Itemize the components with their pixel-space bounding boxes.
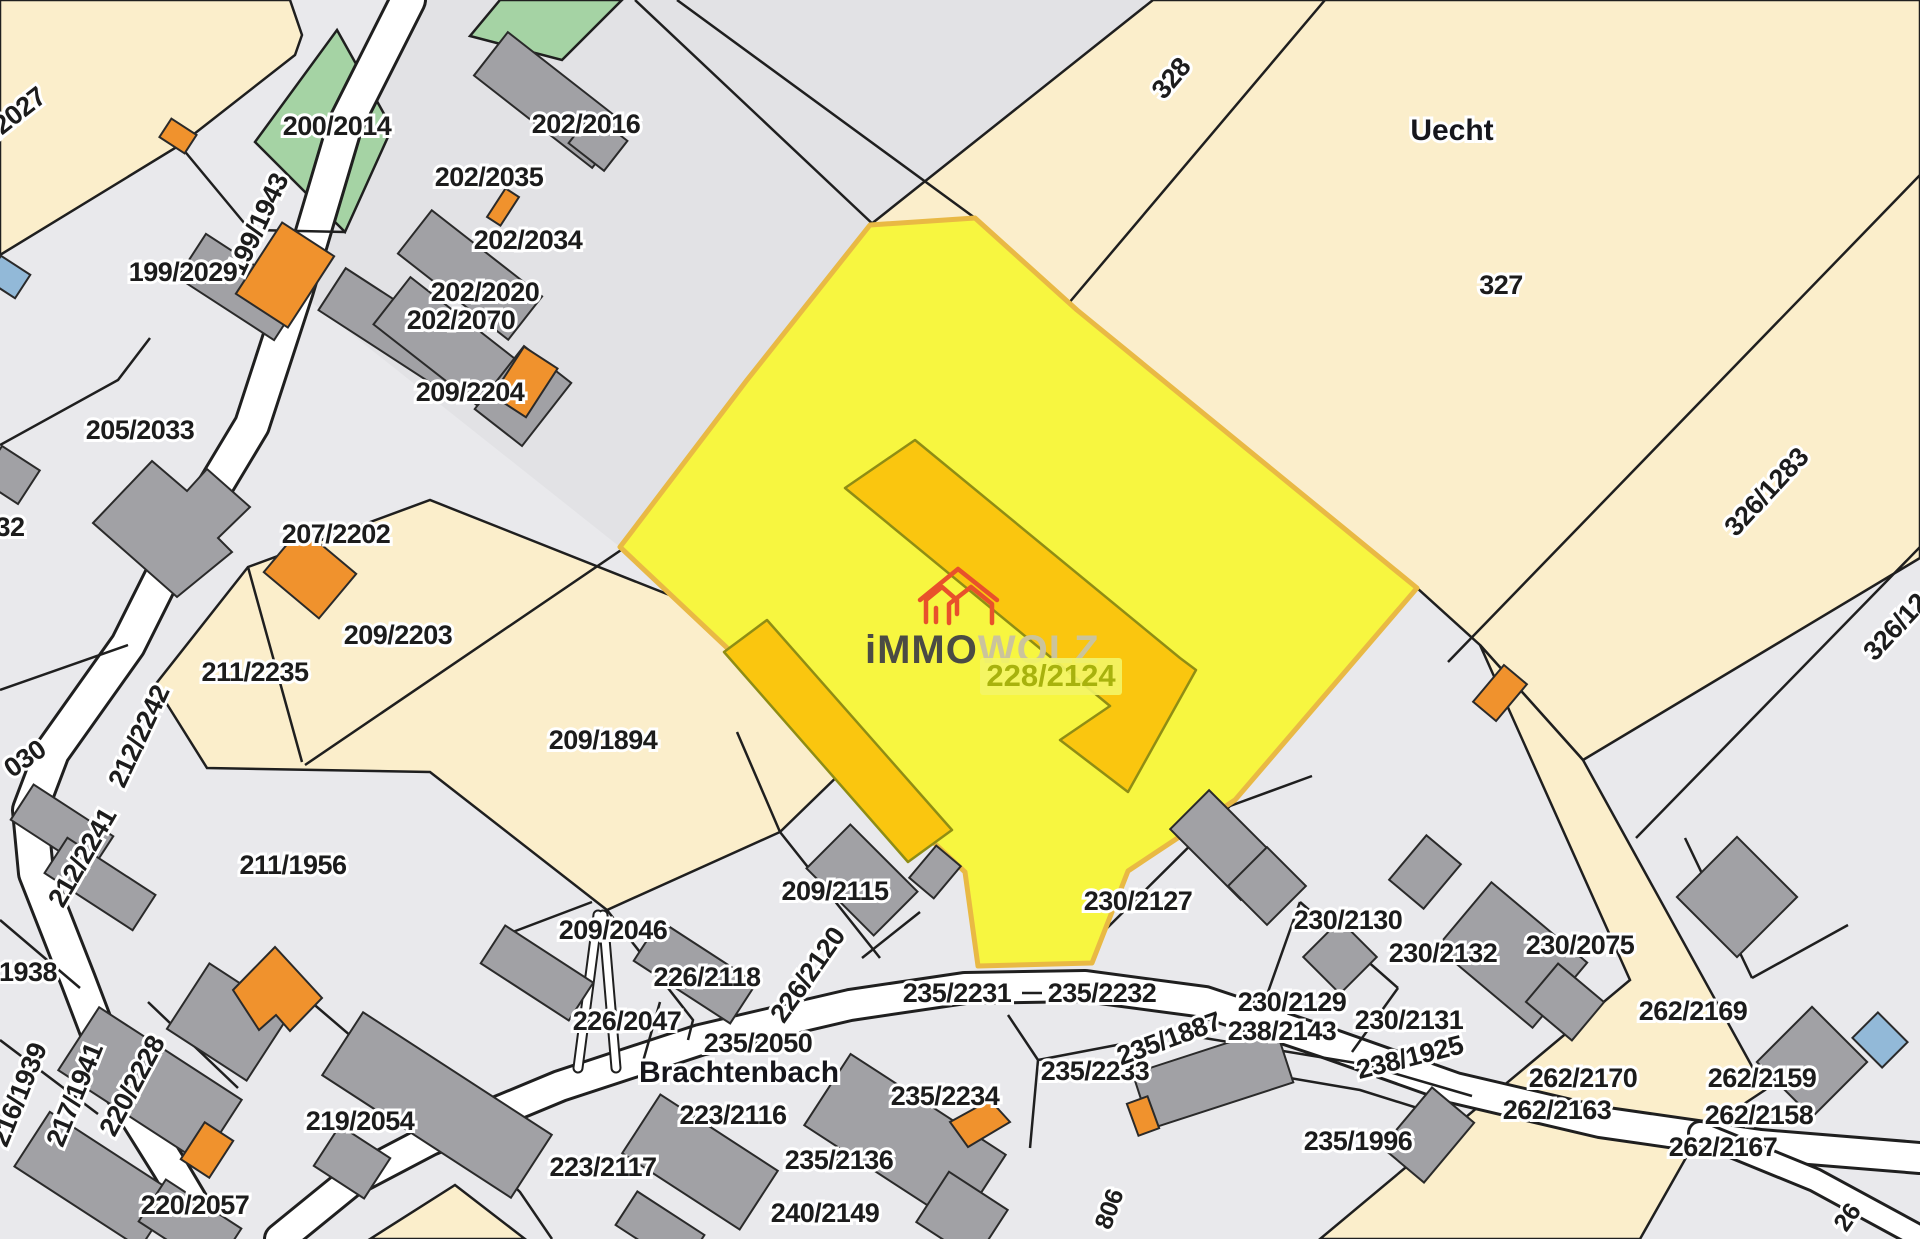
parcel-label: 223/2116	[679, 1100, 787, 1130]
parcel-label: 211/2235	[201, 657, 309, 687]
parcel-label: 230/2131	[1355, 1005, 1464, 1035]
place-name-label: Brachtenbach	[639, 1056, 839, 1089]
parcel-label: 223/2117	[549, 1152, 656, 1182]
parcel-label: 32	[0, 512, 25, 542]
parcel-label: 262/2170	[1529, 1063, 1638, 1093]
parcel-label: 230/2075	[1526, 930, 1635, 960]
parcel-label: 209/2203	[344, 620, 453, 650]
parcel-label: 240/2149	[771, 1198, 880, 1228]
parcel-label: 235/2050	[704, 1028, 813, 1058]
parcel-label: 1938	[0, 957, 58, 987]
parcel-label: 262/2169	[1639, 996, 1748, 1026]
parcel-label: 202/2070	[407, 305, 516, 335]
parcel-label: 235/2232	[1048, 978, 1157, 1008]
parcel-label: 202/2034	[474, 225, 583, 255]
parcel-label: 202/2020	[431, 277, 540, 307]
parcel-label: 327	[1479, 270, 1523, 300]
parcel-label: 235/2234	[891, 1081, 1000, 1111]
parcel-label: 205/2033	[86, 415, 195, 445]
parcel-label: 226/2118	[653, 962, 761, 992]
parcel-label: 230/2130	[1294, 905, 1403, 935]
parcel-label: 226/2047	[573, 1006, 682, 1036]
parcel-label: 262/2167	[1669, 1132, 1778, 1162]
parcel-label: 209/2115	[781, 876, 889, 906]
parcel-label: 219/2054	[306, 1106, 415, 1136]
parcel-label: 230/2129	[1238, 987, 1347, 1017]
parcel-label: 230/2127	[1084, 886, 1193, 916]
parcel-label: 262/2158	[1705, 1100, 1814, 1130]
parcel-label: 209/2204	[416, 377, 525, 407]
parcel-label: 209/1894	[549, 725, 658, 755]
parcel-label: 238/2143	[1228, 1016, 1337, 1046]
parcel-label: 207/2202	[282, 519, 391, 549]
parcel-label: 235/2136	[785, 1145, 894, 1175]
parcel-label: 230/2132	[1389, 938, 1498, 968]
parcel-label: 262/2163	[1503, 1095, 1612, 1125]
parcel-label: 199/2029	[129, 257, 238, 287]
parcel-label: 209/2046	[559, 915, 668, 945]
parcel-label: 200/2014	[283, 111, 392, 141]
cadastral-map-viewport: /2027200/2014202/2016202/2035202/2034202…	[0, 0, 1920, 1239]
cadastral-map: /2027200/2014202/2016202/2035202/2034202…	[0, 0, 1920, 1239]
parcel-label: 202/2035	[435, 162, 544, 192]
parcel-label: 220/2057	[141, 1190, 250, 1220]
parcel-label: 211/1956	[239, 850, 347, 880]
parcel-label: 262/2159	[1708, 1063, 1817, 1093]
parcel-label: 235/2231	[903, 978, 1012, 1008]
parcel-label: 235/1996	[1304, 1126, 1413, 1156]
place-name-label: Uecht	[1410, 114, 1493, 147]
parcel-label: 202/2016	[532, 109, 641, 139]
watermark-parcel-number: 228/2124	[986, 658, 1116, 693]
